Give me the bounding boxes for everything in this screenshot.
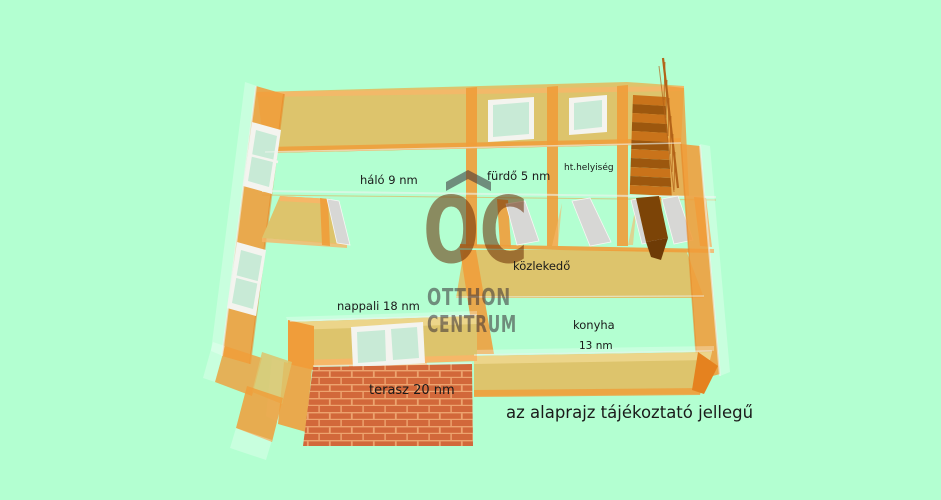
room-label-hallway: közlekedő: [513, 260, 570, 273]
watermark-line1: OTTHON: [427, 285, 511, 311]
disclaimer-text: az alaprajz tájékoztató jellegű: [506, 404, 753, 422]
utility-window: [569, 95, 607, 135]
room-label-kitchen: konyha: [573, 319, 615, 332]
watermark-line2: CENTRUM: [427, 312, 517, 338]
room-size-kitchen: 13 nm: [579, 341, 613, 353]
room-label-terrace: terasz 20 nm: [369, 384, 455, 398]
room-label-utility: ht.helyiség: [564, 164, 614, 174]
room-label-bathroom: fürdő 5 nm: [487, 170, 550, 183]
bathroom-window: [488, 97, 534, 142]
floor-plan-drawing: OC OTTHON CENTRUM: [0, 0, 941, 500]
room-label-living-room: nappali 18 nm: [337, 300, 420, 313]
floor-plan: OC OTTHON CENTRUM háló 9 nm fürdő 5 nm h…: [0, 0, 941, 500]
room-label-bedroom: háló 9 nm: [360, 174, 418, 187]
watermark: OC OTTHON CENTRUM: [423, 170, 528, 338]
terrace: [303, 363, 473, 446]
